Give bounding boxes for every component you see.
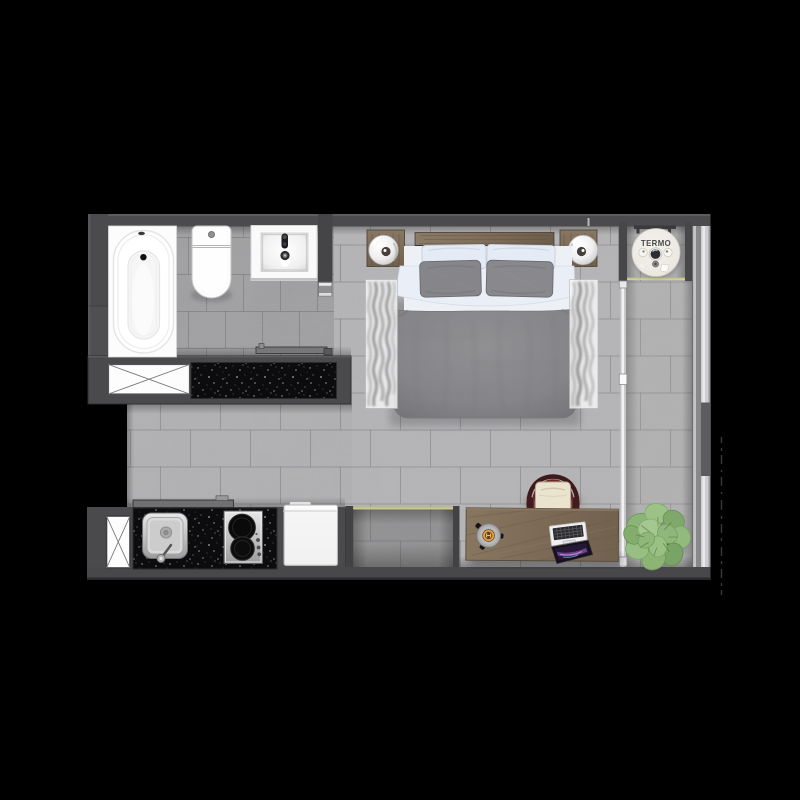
- svg-text:TERMO: TERMO: [641, 239, 671, 248]
